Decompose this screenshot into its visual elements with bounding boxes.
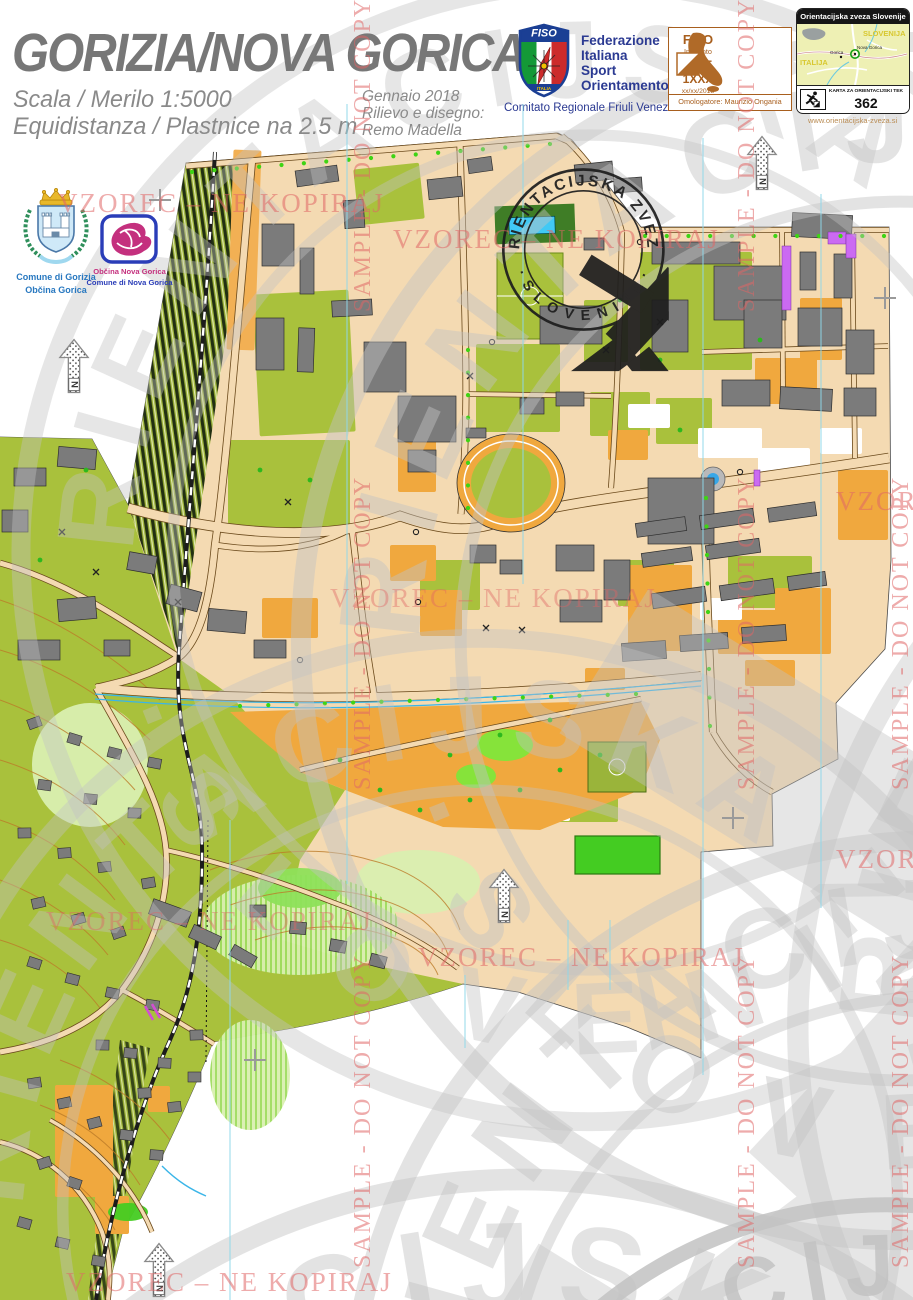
svg-text:VZOREC – NE KOPIRAJ: VZOREC – NE KOPIRAJ bbox=[393, 224, 720, 254]
ozs-stamp bbox=[491, 151, 758, 437]
svg-text:VZOREC – NE KOPIRAJ: VZOREC – NE KOPIRAJ bbox=[330, 583, 657, 613]
map-sheet: ORIENTACIJSKA ZVEZA · S L O V E N I J E … bbox=[0, 0, 913, 1300]
svg-text:SAMPLE - DO NOT COPY: SAMPLE - DO NOT COPY bbox=[734, 954, 760, 1268]
svg-text:SAMPLE - DO NOT COPY: SAMPLE - DO NOT COPY bbox=[888, 476, 913, 790]
svg-text:SAMPLE - DO NOT COPY: SAMPLE - DO NOT COPY bbox=[734, 476, 760, 790]
svg-text:VZOREC – NE KOPIRAJ: VZOREC – NE KOPIRAJ bbox=[836, 844, 913, 874]
svg-text:SAMPLE - DO NOT COPY: SAMPLE - DO NOT COPY bbox=[350, 954, 376, 1268]
north-arrow bbox=[60, 340, 88, 393]
svg-text:VZOREC – NE KOPIRAJ: VZOREC – NE KOPIRAJ bbox=[46, 906, 373, 936]
north-arrow bbox=[490, 870, 518, 923]
svg-text:SAMPLE - DO NOT COPY: SAMPLE - DO NOT COPY bbox=[888, 954, 913, 1268]
svg-text:SAMPLE - DO NOT COPY: SAMPLE - DO NOT COPY bbox=[350, 476, 376, 790]
svg-text:VZOREC – NE KOPIRAJ: VZOREC – NE KOPIRAJ bbox=[418, 942, 745, 972]
copy-watermarks: VZOREC – NE KOPIRAJ VZOREC – NE KOPIRAJ … bbox=[46, 0, 913, 1297]
svg-text:SAMPLE - DO NOT COPY: SAMPLE - DO NOT COPY bbox=[350, 0, 376, 312]
overlay-marks: VZOREC – NE KOPIRAJ VZOREC – NE KOPIRAJ … bbox=[0, 0, 913, 1300]
svg-text:VZOREC – NE KOPIRAJ: VZOREC – NE KOPIRAJ bbox=[58, 188, 385, 218]
svg-text:VZOREC – NE KOPIRAJ: VZOREC – NE KOPIRAJ bbox=[66, 1267, 393, 1297]
svg-text:SAMPLE - DO NOT COPY: SAMPLE - DO NOT COPY bbox=[734, 0, 760, 312]
